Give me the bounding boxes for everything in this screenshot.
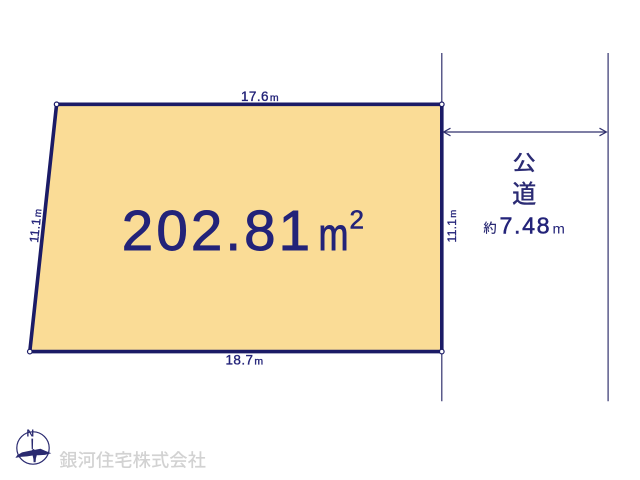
svg-text:m: m [319, 209, 349, 260]
svg-text:18.7m: 18.7m [226, 353, 264, 368]
svg-text:m: m [553, 222, 565, 237]
svg-text:11.1m: 11.1m [445, 210, 459, 243]
svg-text:N: N [27, 428, 35, 440]
svg-text:2: 2 [350, 205, 364, 235]
svg-text:7.48: 7.48 [500, 212, 552, 238]
svg-text:17.6m: 17.6m [241, 89, 279, 104]
svg-text:202.81: 202.81 [122, 199, 313, 262]
